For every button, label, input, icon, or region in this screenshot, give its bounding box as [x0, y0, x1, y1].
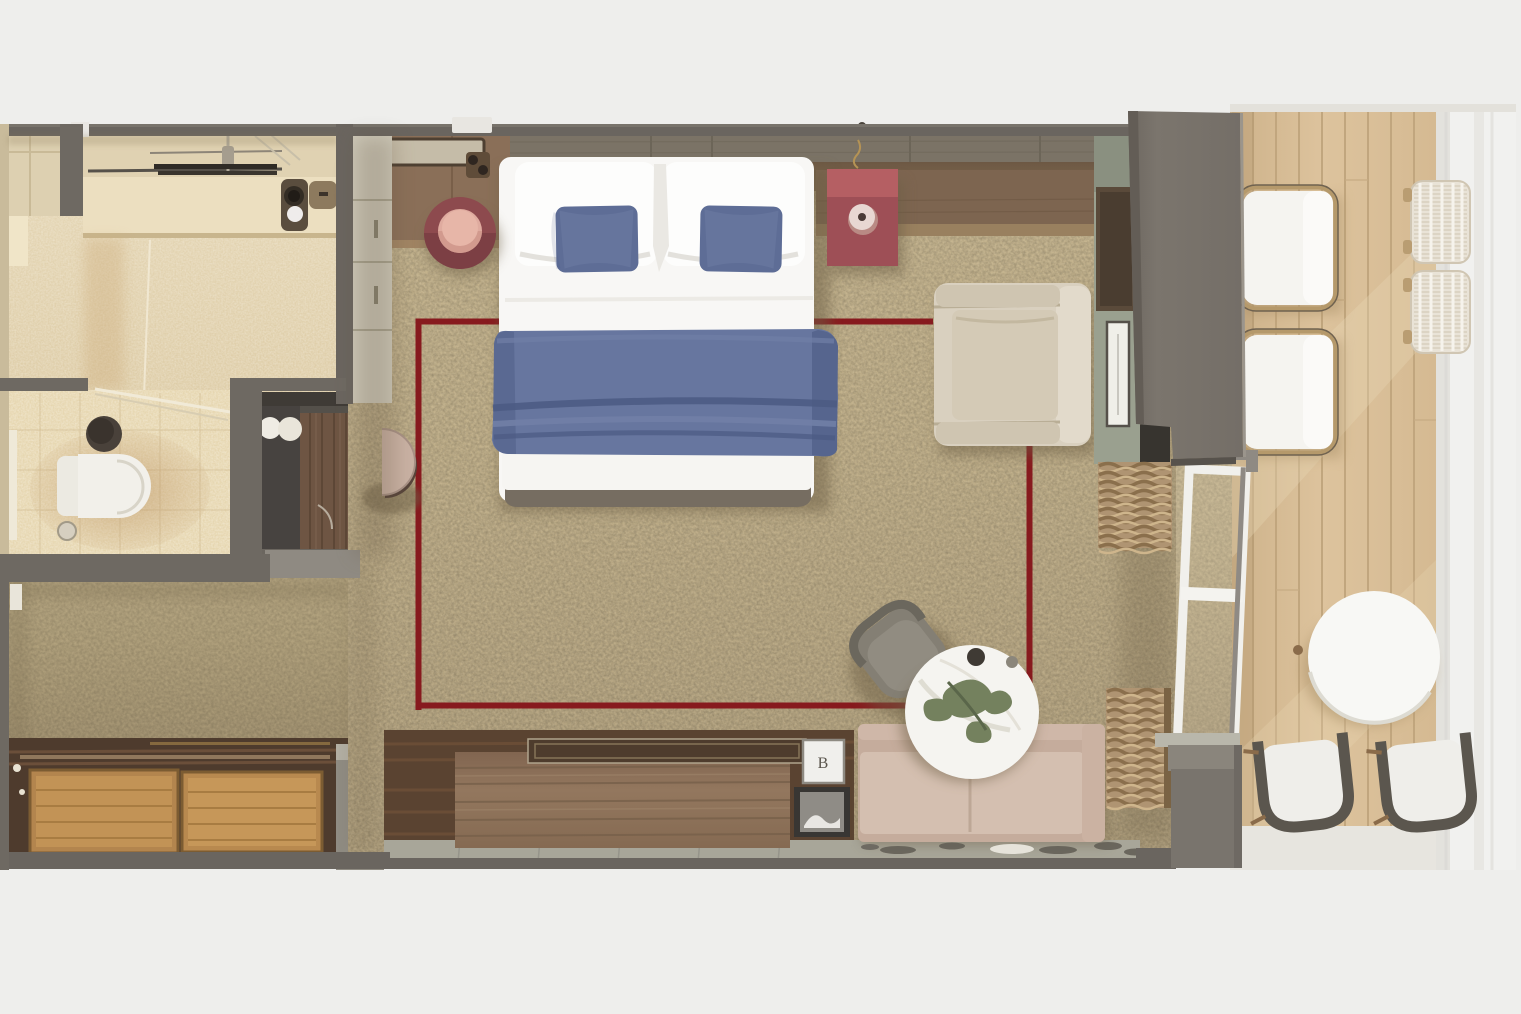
svg-text:B: B [818, 755, 829, 772]
